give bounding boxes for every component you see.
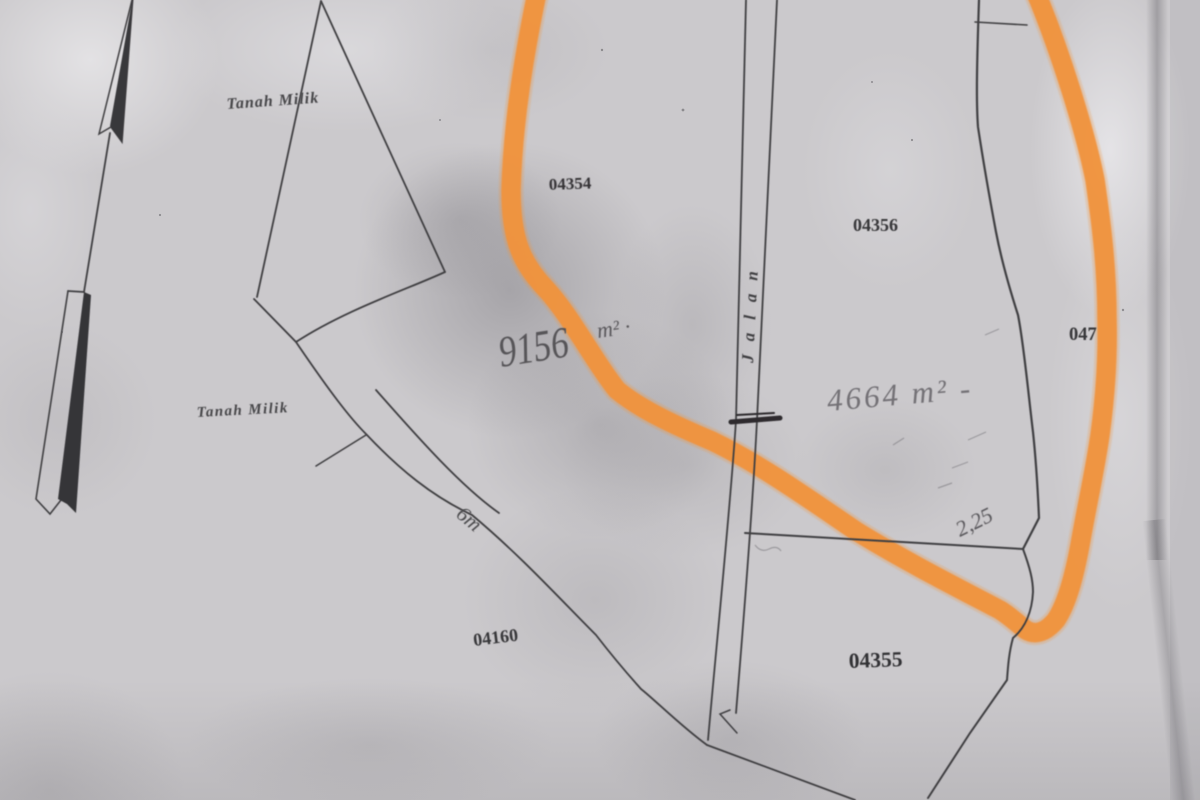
- svg-text:04356: 04356: [853, 215, 898, 235]
- svg-text:04354: 04354: [548, 174, 592, 194]
- svg-text:4664 m² -: 4664 m² -: [826, 370, 975, 418]
- svg-text:047: 047: [1069, 325, 1097, 345]
- svg-text:Jalan: Jalan: [738, 258, 763, 365]
- svg-text:Tanah Milik: Tanah Milik: [226, 90, 320, 113]
- svg-text:Tanah Milik: Tanah Milik: [196, 400, 289, 421]
- svg-text:04355: 04355: [848, 647, 903, 673]
- svg-text:04160: 04160: [472, 625, 519, 650]
- svg-text:6m: 6m: [452, 501, 487, 536]
- svg-text:2,25: 2,25: [951, 502, 997, 541]
- svg-text:9156: 9156: [495, 317, 572, 377]
- svg-text:m² ·: m² ·: [595, 314, 632, 343]
